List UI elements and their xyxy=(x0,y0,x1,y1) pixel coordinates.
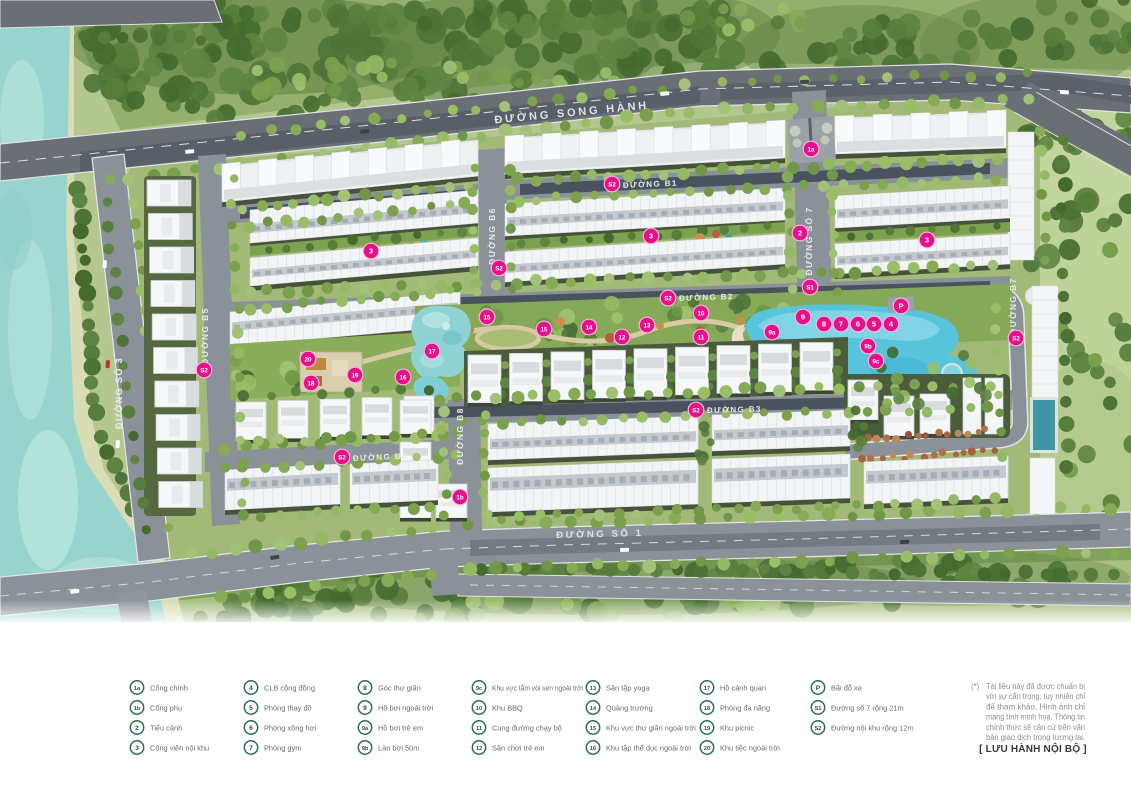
svg-text:Sân tập yoga: Sân tập yoga xyxy=(606,684,650,693)
svg-text:để tham khảo. Hình ảnh chỉ: để tham khảo. Hình ảnh chỉ xyxy=(986,702,1085,711)
svg-text:S2: S2 xyxy=(1012,336,1020,343)
svg-text:ĐƯỜNG B7: ĐƯỜNG B7 xyxy=(1007,277,1018,335)
svg-text:12: 12 xyxy=(476,746,482,752)
svg-text:3: 3 xyxy=(135,745,139,752)
svg-text:Công viên nội khu: Công viên nội khu xyxy=(150,744,209,753)
svg-text:S1: S1 xyxy=(815,706,822,712)
svg-text:6: 6 xyxy=(249,725,253,732)
svg-text:S2: S2 xyxy=(338,455,346,462)
svg-text:S2: S2 xyxy=(608,182,616,189)
svg-text:13: 13 xyxy=(590,686,596,692)
svg-text:Làn bơi 50m: Làn bơi 50m xyxy=(378,744,419,753)
svg-text:20: 20 xyxy=(704,746,710,752)
svg-text:17: 17 xyxy=(429,349,436,356)
svg-text:7: 7 xyxy=(249,745,253,752)
svg-text:S2: S2 xyxy=(495,266,503,273)
svg-text:Tiểu cảnh: Tiểu cảnh xyxy=(150,724,182,733)
svg-text:10: 10 xyxy=(698,311,705,318)
svg-text:Hồ cảnh quan: Hồ cảnh quan xyxy=(720,684,766,693)
svg-text:ĐƯỜNG SỐ 7: ĐƯỜNG SỐ 7 xyxy=(803,207,814,276)
svg-text:[ LƯU HÀNH NỘI BỘ ]: [ LƯU HÀNH NỘI BỘ ] xyxy=(979,742,1087,755)
svg-text:3: 3 xyxy=(369,247,373,256)
svg-text:Bãi đỗ xe: Bãi đỗ xe xyxy=(831,684,862,693)
svg-text:18: 18 xyxy=(308,381,315,388)
svg-text:16: 16 xyxy=(590,746,596,752)
svg-text:Góc thư giãn: Góc thư giãn xyxy=(378,684,421,693)
svg-text:9b: 9b xyxy=(362,746,369,752)
svg-text:Khu tiệc ngoài trời: Khu tiệc ngoài trời xyxy=(720,744,780,753)
svg-text:1b: 1b xyxy=(456,495,463,502)
svg-text:15: 15 xyxy=(484,315,491,322)
svg-text:9: 9 xyxy=(363,705,367,712)
svg-text:chính thức sẽ căn cứ trên văn: chính thức sẽ căn cứ trên văn xyxy=(986,723,1085,732)
svg-text:với sự cẩn trọng, tuy nhiên ch: với sự cẩn trọng, tuy nhiên chỉ xyxy=(986,692,1085,701)
svg-text:9b: 9b xyxy=(864,344,871,351)
svg-text:8: 8 xyxy=(822,320,826,329)
svg-text:Phòng gym: Phòng gym xyxy=(264,744,301,753)
svg-text:11: 11 xyxy=(476,726,482,732)
svg-text:Phòng thay đồ: Phòng thay đồ xyxy=(264,704,312,713)
svg-text:1a: 1a xyxy=(808,147,815,154)
svg-text:9a: 9a xyxy=(769,330,776,337)
svg-text:Phòng đa năng: Phòng đa năng xyxy=(720,704,770,713)
svg-text:16: 16 xyxy=(400,375,407,382)
svg-text:9a: 9a xyxy=(362,726,369,732)
svg-text:9: 9 xyxy=(801,313,805,322)
svg-text:P: P xyxy=(898,302,903,311)
svg-text:S2: S2 xyxy=(200,368,208,375)
svg-text:Sân chơi trẻ em: Sân chơi trẻ em xyxy=(492,744,545,753)
svg-text:19: 19 xyxy=(352,373,359,380)
svg-text:2: 2 xyxy=(798,229,802,238)
svg-text:15: 15 xyxy=(541,327,548,334)
svg-text:2: 2 xyxy=(135,725,139,732)
svg-text:6: 6 xyxy=(856,320,860,329)
svg-text:7: 7 xyxy=(839,320,843,329)
svg-text:5: 5 xyxy=(872,320,876,329)
svg-text:bản giao dịch trong tương lai.: bản giao dịch trong tương lai. xyxy=(986,733,1085,742)
svg-text:(*): (*) xyxy=(971,682,980,691)
svg-text:mang tính minh họa. Thông tin: mang tính minh họa. Thông tin xyxy=(986,713,1085,722)
svg-text:Khu vực thư giãn ngoài trời: Khu vực thư giãn ngoài trời xyxy=(606,724,696,733)
svg-text:14: 14 xyxy=(586,325,593,332)
svg-text:12: 12 xyxy=(619,335,626,342)
svg-text:ĐƯỜNG SỐ 3: ĐƯỜNG SỐ 3 xyxy=(113,357,124,429)
svg-text:13: 13 xyxy=(644,323,651,330)
svg-text:3: 3 xyxy=(925,236,929,245)
svg-text:ĐƯỜNG B5: ĐƯỜNG B5 xyxy=(199,307,210,365)
svg-text:Cổng phụ: Cổng phụ xyxy=(150,704,182,713)
svg-text:S2: S2 xyxy=(815,726,822,732)
svg-text:Cổng chính: Cổng chính xyxy=(150,684,188,693)
svg-text:4: 4 xyxy=(249,685,253,692)
svg-text:9c: 9c xyxy=(476,686,482,692)
svg-text:8: 8 xyxy=(363,685,367,692)
svg-text:11: 11 xyxy=(698,335,705,342)
svg-text:Quảng trường: Quảng trường xyxy=(606,704,653,713)
svg-text:ĐƯỜNG B2: ĐƯỜNG B2 xyxy=(679,292,734,303)
svg-text:Khu BBQ: Khu BBQ xyxy=(492,704,523,713)
svg-text:Khu tập thể dục ngoài trời: Khu tập thể dục ngoài trời xyxy=(606,744,691,753)
svg-text:S1: S1 xyxy=(806,285,814,292)
svg-text:20: 20 xyxy=(305,357,312,364)
svg-text:Hồ bơi ngoài trời: Hồ bơi ngoài trời xyxy=(378,704,434,713)
svg-text:17: 17 xyxy=(704,686,710,692)
svg-text:Hồ bơi trẻ em: Hồ bơi trẻ em xyxy=(378,724,423,733)
svg-text:Đường nội khu rộng 12m: Đường nội khu rộng 12m xyxy=(831,724,914,733)
svg-text:3: 3 xyxy=(649,232,653,241)
svg-text:1b: 1b xyxy=(134,706,141,712)
svg-text:10: 10 xyxy=(476,706,482,712)
svg-text:5: 5 xyxy=(249,705,253,712)
svg-text:19: 19 xyxy=(704,726,710,732)
svg-text:ĐƯỜNG SỐ 1: ĐƯỜNG SỐ 1 xyxy=(556,527,644,541)
svg-text:Đường số 7 rộng 21m: Đường số 7 rộng 21m xyxy=(831,704,904,713)
svg-text:ĐƯỜNG B6: ĐƯỜNG B6 xyxy=(486,207,497,265)
svg-text:Phòng xông hơi: Phòng xông hơi xyxy=(264,724,316,733)
svg-text:P: P xyxy=(816,685,821,692)
svg-text:14: 14 xyxy=(590,706,597,712)
svg-text:S2: S2 xyxy=(664,296,672,303)
svg-text:18: 18 xyxy=(704,706,710,712)
svg-text:CLB cộng đồng: CLB cộng đồng xyxy=(264,684,315,693)
svg-text:Tài liệu này đã được chuẩn bị: Tài liệu này đã được chuẩn bị xyxy=(986,682,1085,691)
svg-text:ĐƯỜNG B8: ĐƯỜNG B8 xyxy=(454,407,465,465)
svg-text:9c: 9c xyxy=(873,359,880,366)
svg-text:Khu vực tắm vòi sen ngoài trời: Khu vực tắm vòi sen ngoài trời xyxy=(492,684,583,693)
svg-text:ĐƯỜNG B3: ĐƯỜNG B3 xyxy=(707,405,762,415)
svg-text:S2: S2 xyxy=(692,408,700,415)
svg-text:Cung đường chạy bộ: Cung đường chạy bộ xyxy=(492,724,562,733)
svg-text:Khu picnic: Khu picnic xyxy=(720,724,754,733)
svg-text:1a: 1a xyxy=(134,686,141,692)
svg-text:15: 15 xyxy=(590,726,596,732)
